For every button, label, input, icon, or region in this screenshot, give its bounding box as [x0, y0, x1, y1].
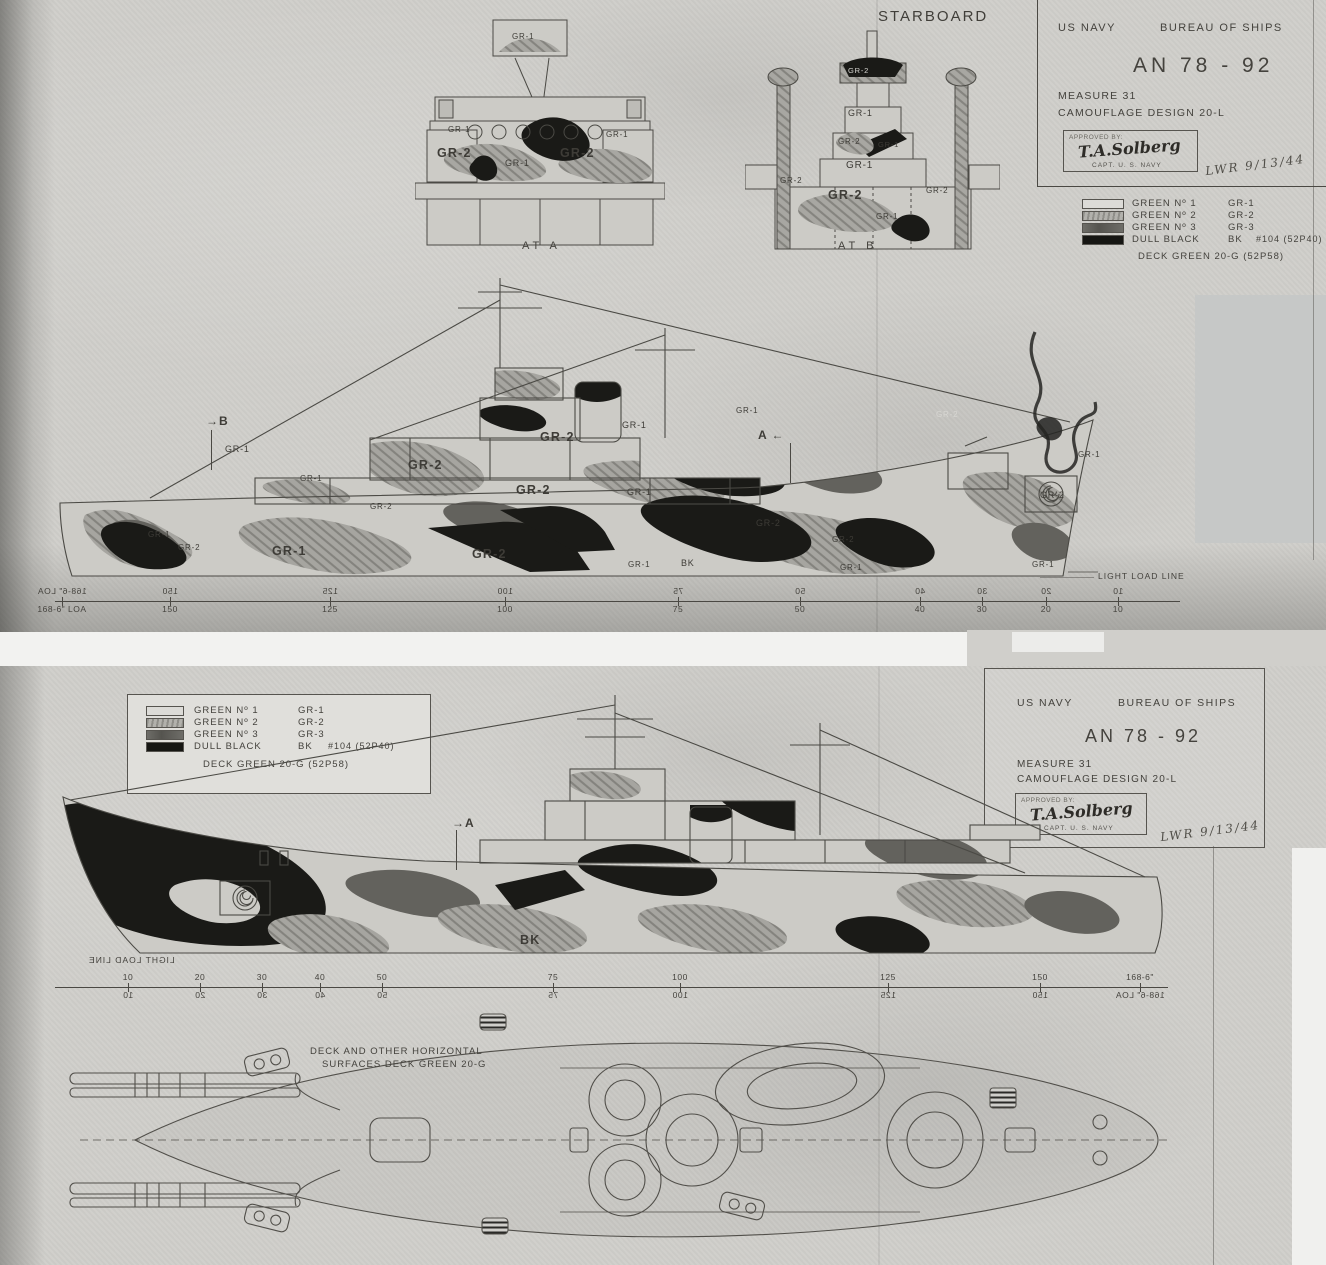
legend-name: GREEN Nº 1 — [1132, 198, 1197, 209]
paint-label-gr2: GR-2 — [437, 146, 472, 160]
section-a-caption: AT A — [522, 240, 561, 252]
legend-swatch-dullblack — [1082, 235, 1124, 245]
paint-label-gr1: GR-1 — [1032, 560, 1054, 569]
section-marker-b: →B — [206, 414, 229, 428]
legend-name: GREEN Nº 3 — [1132, 222, 1197, 233]
paint-label-gr2: GR-2 — [832, 535, 854, 544]
paint-label-bk: BK — [681, 558, 695, 568]
starboard-camouflage-pattern — [30, 270, 1200, 600]
scan-mask-patch — [1195, 295, 1326, 543]
measure-line: MEASURE 31 — [1058, 90, 1137, 102]
legend-swatch-green2 — [1082, 211, 1124, 221]
legend-name: GREEN Nº 2 — [1132, 210, 1197, 221]
paint-label-gr1: GR-1 — [878, 140, 899, 149]
legend-name: DULL BLACK — [1132, 234, 1200, 245]
paint-label-gr1: GR-1 — [505, 158, 530, 168]
paint-label-gr1: GR-1 — [300, 474, 322, 483]
paint-label-gr1: GR-1 — [448, 125, 470, 134]
paint-label-gr2: GR-2 — [560, 146, 595, 160]
paint-label-gr1: GR-1 — [876, 212, 898, 221]
paint-label-gr2: GR-2 — [780, 176, 802, 185]
org-us-navy: US NAVY — [1058, 22, 1116, 34]
paint-label-gr1: GR-1 — [512, 32, 534, 41]
paint-label-gr1: GR-1 — [225, 444, 250, 454]
approval-stamp: APPROVED BY: T.A.Solberg CAPT. U. S. NAV… — [1063, 130, 1198, 172]
paint-label-gr2: GR-2 — [936, 410, 958, 419]
design-line: CAMOUFLAGE DESIGN 20-L — [1058, 107, 1225, 119]
paint-label-gr2: GR-2 — [926, 186, 948, 195]
paint-label-gr1: GR-1 — [840, 563, 862, 572]
legend-extra: #104 (52P40) — [1256, 234, 1323, 244]
signature-title: CAPT. U. S. NAVY — [1092, 162, 1162, 169]
port-camouflage-pattern — [25, 685, 1195, 990]
drawing-number: AN 78 - 92 — [1133, 54, 1273, 78]
section-b-caption: AT B — [838, 240, 877, 252]
starboard-label: STARBOARD — [878, 8, 988, 25]
paint-label-gr1: GR-1 — [627, 487, 652, 497]
legend-swatch-green1 — [1082, 199, 1124, 209]
paint-label-bk: BK — [520, 933, 540, 947]
section-view-at-b — [745, 25, 1000, 250]
legend-code: GR-2 — [1228, 210, 1255, 221]
paint-label-gr1: GR-1 — [606, 130, 628, 139]
paint-label-gr1: GR-1 — [736, 406, 758, 415]
paint-label-gr2: GR-2 — [540, 430, 575, 444]
paint-label-gr2: GR-2 — [408, 458, 443, 472]
deck-note-line2: SURFACES DECK GREEN 20-G — [322, 1059, 486, 1070]
scanned-camouflage-drawing: STARBOARD US NAVY BUREAU OF SHIPS AN 78 … — [0, 0, 1326, 1265]
paint-label-gr2: GR-2 — [828, 188, 863, 202]
paint-label-gr2: GR-2 — [472, 547, 507, 561]
section-marker-a: A ← — [758, 428, 785, 442]
legend-code: BK — [1228, 234, 1243, 245]
light-load-line-label: LIGHT LOAD LINE — [1098, 571, 1185, 581]
paint-label-gr1: GR-1 — [1078, 450, 1100, 459]
paint-label-gr1: GR-1 — [628, 560, 650, 569]
paint-label-gr1: GR-1 — [272, 544, 307, 558]
starboard-profile-drawing — [30, 270, 1200, 600]
org-bureau: BUREAU OF SHIPS — [1160, 22, 1283, 34]
deck-note-line1: DECK AND OTHER HORIZONTAL — [310, 1046, 483, 1057]
paint-label-gr2: GR-2 — [756, 518, 781, 528]
legend-deck-line: DECK GREEN 20-G (52P58) — [1138, 251, 1284, 262]
legend-swatch-green3 — [1082, 223, 1124, 233]
paint-label-gr1: GR-1 — [846, 160, 873, 171]
paint-label-gr2: GR-2 — [848, 66, 869, 75]
legend-code: GR-3 — [1228, 222, 1255, 233]
paint-label-gr1: GR-1 — [148, 530, 170, 539]
paint-label-gr2: GR-2 — [178, 543, 200, 552]
paint-label-gr2: GR-2 — [838, 137, 860, 146]
port-profile-drawing — [25, 685, 1195, 990]
deck-plan-drawing — [40, 1000, 1200, 1265]
legend-code: GR-1 — [1228, 198, 1255, 209]
light-load-line-label-mirrored: LIGHT LOAD LINE — [88, 955, 175, 965]
paint-label-gr2: GR-2 — [516, 483, 551, 497]
paint-label-gr2: GR-2 — [1040, 490, 1065, 500]
section-marker-a: →A — [452, 816, 475, 830]
paint-label-gr1: GR-1 — [622, 420, 647, 430]
paint-label-gr1: GR-1 — [848, 108, 873, 118]
paint-label-gr2: GR-2 — [370, 502, 392, 511]
